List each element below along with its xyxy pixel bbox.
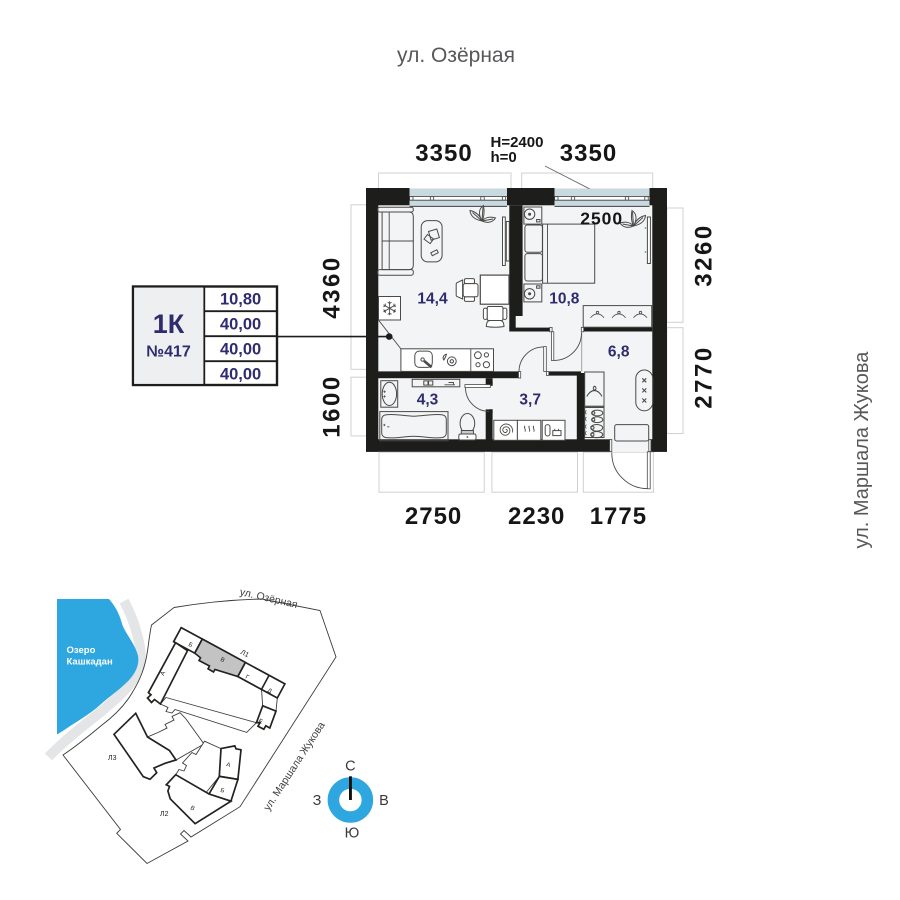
svg-text:40,00: 40,00 xyxy=(220,316,261,334)
svg-text:3,7: 3,7 xyxy=(519,392,541,409)
svg-text:40,00: 40,00 xyxy=(220,366,261,384)
svg-text:ул. Маршала Жукова: ул. Маршала Жукова xyxy=(851,351,873,549)
svg-text:Ю: Ю xyxy=(345,826,360,842)
svg-text:1775: 1775 xyxy=(590,503,647,530)
svg-text:З: З xyxy=(313,793,322,809)
svg-text:2230: 2230 xyxy=(508,503,565,530)
svg-text:14,4: 14,4 xyxy=(417,291,448,308)
svg-text:2770: 2770 xyxy=(691,345,718,408)
svg-text:№417: №417 xyxy=(146,344,191,361)
svg-text:40,00: 40,00 xyxy=(220,341,261,359)
svg-text:ул. Озёрная: ул. Озёрная xyxy=(397,44,515,67)
svg-text:3260: 3260 xyxy=(691,223,718,286)
svg-text:Л2: Л2 xyxy=(160,811,169,818)
svg-text:10,8: 10,8 xyxy=(549,291,580,308)
svg-text:С: С xyxy=(345,759,355,775)
svg-text:10,80: 10,80 xyxy=(220,291,261,309)
svg-text:2500: 2500 xyxy=(580,209,623,229)
svg-text:Озеро: Озеро xyxy=(67,645,96,656)
svg-text:Л3: Л3 xyxy=(108,755,117,762)
svg-text:h=0: h=0 xyxy=(491,149,517,166)
svg-text:2750: 2750 xyxy=(405,503,462,530)
svg-text:3350: 3350 xyxy=(560,140,617,167)
svg-text:1К: 1К xyxy=(153,309,185,339)
svg-text:3350: 3350 xyxy=(415,140,472,167)
svg-text:6,8: 6,8 xyxy=(608,344,630,361)
svg-text:В: В xyxy=(379,793,389,809)
svg-text:1600: 1600 xyxy=(319,374,346,437)
svg-text:4,3: 4,3 xyxy=(417,392,439,409)
svg-text:Кашкадан: Кашкадан xyxy=(67,657,113,668)
svg-text:4360: 4360 xyxy=(319,255,346,318)
